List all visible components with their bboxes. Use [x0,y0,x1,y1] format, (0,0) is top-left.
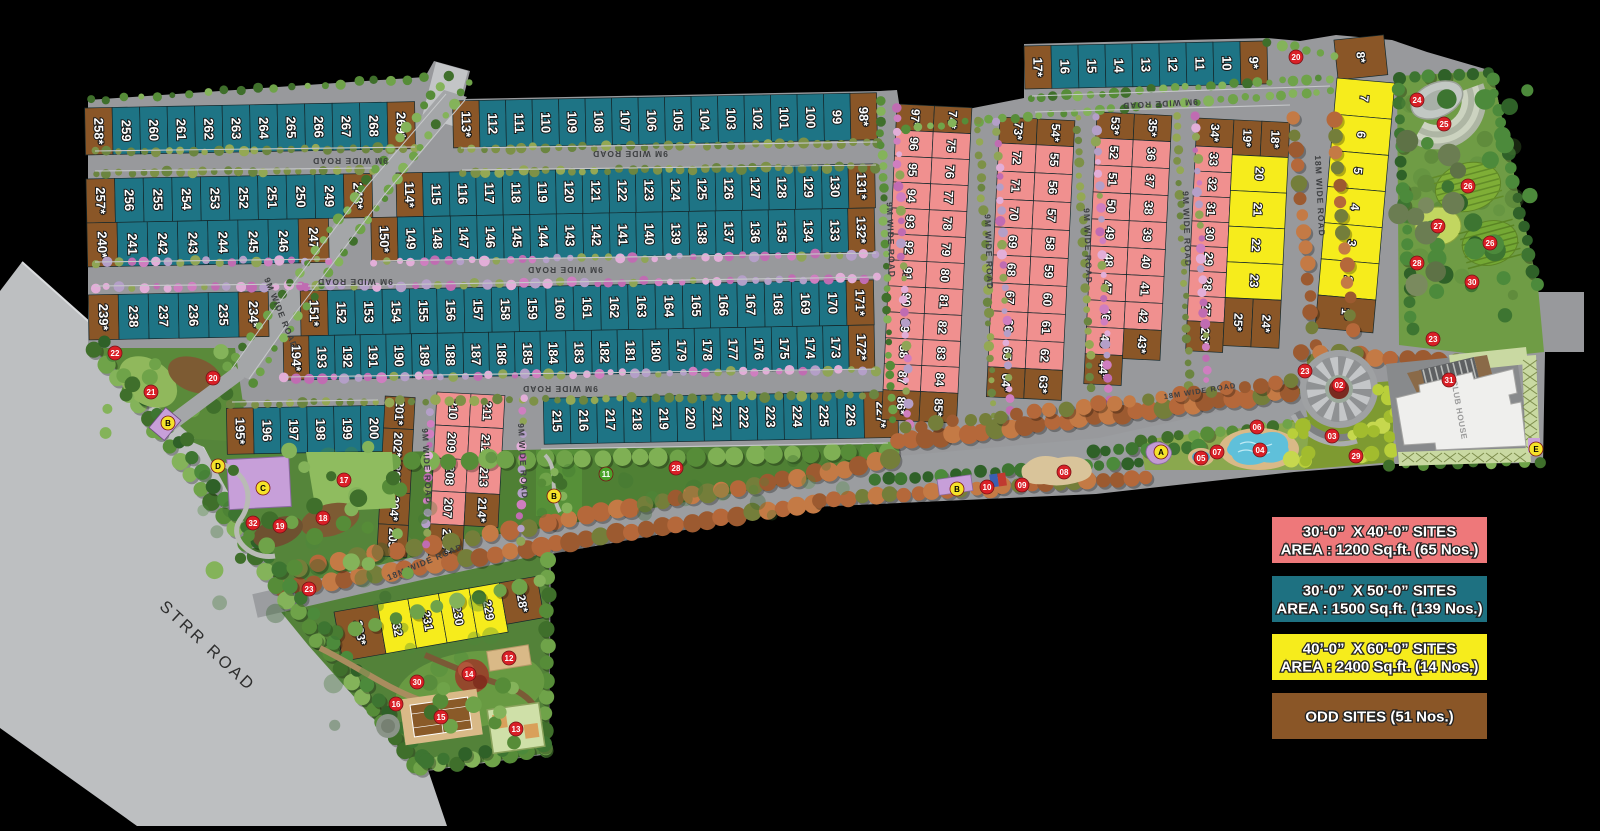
svg-text:B: B [165,419,171,428]
svg-text:150*: 150* [377,226,393,254]
svg-text:132*: 132* [854,217,870,245]
svg-text:179: 179 [674,340,689,362]
svg-text:20: 20 [1252,167,1267,181]
svg-text:13: 13 [512,725,521,734]
svg-text:216: 216 [576,409,591,431]
svg-text:12: 12 [505,654,514,663]
svg-text:200: 200 [367,417,382,439]
svg-text:61: 61 [1039,320,1054,334]
svg-text:10: 10 [1219,56,1234,71]
svg-text:214*: 214* [474,497,489,523]
svg-text:264: 264 [256,117,271,140]
svg-text:256: 256 [122,189,137,211]
svg-text:137: 137 [721,222,736,244]
svg-text:26: 26 [1486,239,1495,248]
svg-text:93: 93 [903,215,918,229]
svg-text:188: 188 [443,344,458,366]
svg-text:133: 133 [827,220,842,242]
svg-text:24: 24 [1413,96,1422,105]
svg-text:25: 25 [1440,120,1449,129]
svg-text:257*: 257* [93,187,109,215]
svg-text:123: 123 [641,179,656,201]
svg-text:72: 72 [1009,151,1024,165]
svg-text:173: 173 [828,337,843,359]
svg-text:34*: 34* [1207,124,1222,143]
svg-text:15: 15 [437,713,446,722]
svg-text:107: 107 [617,110,632,132]
svg-text:235: 235 [216,304,231,326]
svg-text:135: 135 [774,221,789,243]
svg-text:C: C [260,484,266,493]
svg-text:23: 23 [1429,335,1438,344]
svg-text:183: 183 [571,342,586,364]
svg-text:149: 149 [403,228,418,250]
svg-text:23: 23 [1247,274,1262,288]
svg-text:180: 180 [648,340,663,362]
svg-text:116: 116 [455,183,470,204]
svg-text:80: 80 [938,269,953,283]
svg-text:267: 267 [339,115,354,137]
svg-text:223: 223 [763,406,778,428]
svg-text:195*: 195* [233,418,249,446]
svg-text:154: 154 [388,301,403,324]
svg-text:152: 152 [334,302,349,324]
svg-text:56: 56 [1045,181,1060,195]
svg-text:209: 209 [444,432,459,453]
svg-text:38: 38 [1141,201,1156,215]
svg-text:43*: 43* [1134,335,1149,354]
svg-text:220: 220 [683,407,698,429]
svg-text:236: 236 [186,304,201,326]
svg-text:03: 03 [1328,432,1337,441]
svg-text:161: 161 [579,297,594,319]
svg-text:207: 207 [440,498,455,519]
svg-text:262: 262 [201,118,216,140]
svg-text:63*: 63* [1036,375,1051,394]
svg-text:196: 196 [259,420,274,442]
svg-text:AREA : 2400 Sq.ft. (14 Nos.): AREA : 2400 Sq.ft. (14 Nos.) [1281,659,1479,676]
svg-text:245: 245 [246,231,261,253]
svg-text:119: 119 [535,182,550,203]
svg-text:219: 219 [656,408,671,430]
svg-text:96: 96 [907,137,922,151]
svg-text:221: 221 [710,407,725,429]
svg-text:85*: 85* [931,398,946,417]
svg-text:19*: 19* [1240,129,1255,148]
svg-text:175: 175 [777,338,792,360]
svg-text:B: B [551,492,557,501]
svg-text:16: 16 [392,700,401,709]
svg-text:30’-0” X 50’-0” SITES: 30’-0” X 50’-0” SITES [1303,583,1456,600]
svg-text:9M WIDE ROAD: 9M WIDE ROAD [522,384,598,394]
svg-text:198: 198 [313,419,328,441]
svg-text:51: 51 [1105,172,1120,186]
svg-text:142: 142 [589,224,604,246]
svg-text:113*: 113* [458,111,474,138]
svg-text:191: 191 [366,345,381,367]
svg-text:250: 250 [293,186,308,208]
svg-text:09: 09 [1018,481,1027,490]
svg-text:246: 246 [276,230,291,252]
svg-text:172*: 172* [854,334,870,362]
svg-text:42: 42 [1136,309,1151,323]
svg-text:06: 06 [1253,423,1262,432]
svg-text:146: 146 [483,226,498,248]
svg-text:15: 15 [1084,59,1099,74]
svg-text:37: 37 [1143,174,1158,188]
svg-text:260: 260 [146,119,161,141]
svg-text:254: 254 [179,188,194,211]
svg-text:134: 134 [801,220,816,243]
svg-text:255: 255 [150,189,165,211]
svg-text:20: 20 [1292,53,1301,62]
svg-text:114*: 114* [402,182,418,209]
svg-text:9M WIDE ROAD: 9M WIDE ROAD [527,265,603,275]
svg-text:143: 143 [562,225,577,247]
svg-text:252: 252 [236,187,251,209]
svg-text:AREA : 1200 Sq.ft. (65 Nos.): AREA : 1200 Sq.ft. (65 Nos.) [1281,542,1479,559]
svg-text:39: 39 [1140,228,1155,242]
svg-text:83: 83 [934,346,949,360]
svg-text:186: 186 [494,343,509,365]
svg-text:129: 129 [801,176,816,198]
svg-text:159: 159 [525,298,540,320]
svg-text:78: 78 [940,217,955,231]
svg-text:94: 94 [904,189,919,203]
svg-text:162: 162 [607,296,622,318]
svg-text:243: 243 [185,232,200,254]
svg-text:14: 14 [1111,58,1126,74]
svg-text:158: 158 [498,298,513,320]
svg-text:8*: 8* [1353,51,1368,64]
svg-text:73*: 73* [1011,122,1026,141]
svg-text:28: 28 [672,464,681,473]
svg-text:117: 117 [482,183,497,204]
svg-text:105: 105 [670,109,685,131]
svg-text:261: 261 [174,119,189,141]
svg-text:108: 108 [591,111,606,133]
svg-text:14: 14 [465,670,474,679]
svg-text:13: 13 [1138,58,1153,73]
svg-text:28: 28 [1413,259,1422,268]
svg-text:197: 197 [286,419,301,441]
svg-text:AREA : 1500 Sq.ft. (139 Nos.): AREA : 1500 Sq.ft. (139 Nos.) [1276,601,1482,618]
svg-text:263: 263 [229,118,244,140]
svg-text:12: 12 [1165,57,1180,72]
svg-text:36: 36 [1144,147,1159,161]
svg-text:B: B [954,485,960,494]
svg-text:249: 249 [322,185,337,207]
svg-text:181: 181 [623,341,638,363]
svg-text:121: 121 [588,180,603,202]
svg-text:239*: 239* [96,304,112,332]
svg-text:169: 169 [798,293,813,315]
svg-text:20: 20 [209,374,218,383]
svg-text:131*: 131* [854,173,870,201]
svg-text:170: 170 [825,292,840,314]
svg-text:17*: 17* [1030,57,1045,78]
svg-text:258*: 258* [91,118,107,146]
svg-text:192: 192 [340,346,355,368]
svg-text:156: 156 [443,299,458,321]
svg-text:9M WIDE ROAD: 9M WIDE ROAD [317,277,393,287]
svg-text:18: 18 [319,514,328,523]
svg-text:33: 33 [1206,152,1221,166]
svg-text:11: 11 [602,470,611,479]
svg-text:217: 217 [603,409,618,431]
svg-text:29: 29 [1352,452,1361,461]
svg-text:77: 77 [941,191,956,205]
svg-text:174: 174 [803,337,818,360]
svg-text:118: 118 [508,182,523,203]
svg-text:04: 04 [1256,446,1265,455]
svg-text:241: 241 [125,233,140,255]
svg-text:A: A [1158,448,1164,457]
svg-text:244: 244 [215,231,230,254]
svg-text:157: 157 [470,299,485,321]
svg-text:32: 32 [1205,177,1220,191]
svg-text:22: 22 [111,349,120,358]
svg-text:69: 69 [1005,235,1020,249]
svg-text:168: 168 [771,293,786,315]
svg-text:237: 237 [156,305,171,327]
svg-text:138: 138 [695,222,710,244]
svg-text:259: 259 [119,120,134,142]
svg-text:41: 41 [1137,282,1152,296]
svg-text:111: 111 [512,113,527,134]
svg-text:81: 81 [936,294,951,308]
svg-text:240*: 240* [95,231,111,259]
svg-text:D: D [215,462,221,471]
svg-text:163: 163 [634,296,649,318]
svg-text:193: 193 [314,346,329,368]
svg-text:177: 177 [725,339,740,361]
svg-text:40’-0” X 60’-0” SITES: 40’-0” X 60’-0” SITES [1303,641,1456,658]
svg-text:21: 21 [1250,203,1265,217]
svg-text:178: 178 [700,339,715,361]
svg-text:251: 251 [265,186,280,208]
svg-text:165: 165 [689,295,704,317]
svg-text:23: 23 [305,585,314,594]
svg-text:155: 155 [416,300,431,322]
svg-text:30: 30 [1468,278,1477,287]
svg-text:21: 21 [147,388,156,397]
svg-text:79: 79 [939,243,954,257]
svg-text:31: 31 [1445,376,1454,385]
svg-text:136: 136 [748,221,763,243]
svg-text:82: 82 [935,320,950,334]
svg-text:224: 224 [790,405,805,428]
svg-text:ODD SITES (51 Nos.): ODD SITES (51 Nos.) [1305,709,1453,726]
svg-text:225: 225 [816,405,831,427]
svg-text:102: 102 [750,108,765,130]
svg-text:103: 103 [723,108,738,130]
svg-text:189: 189 [417,345,432,367]
svg-text:05: 05 [1197,454,1206,463]
svg-text:184: 184 [546,342,561,365]
svg-text:22: 22 [1249,238,1264,252]
svg-text:100: 100 [803,107,818,129]
svg-text:110: 110 [538,112,553,133]
svg-text:187: 187 [468,344,483,366]
svg-text:76: 76 [943,165,958,179]
svg-text:95: 95 [905,163,920,177]
svg-text:31: 31 [1204,202,1219,216]
svg-text:202*: 202* [390,432,405,458]
svg-text:30’-0” X 40’-0” SITES: 30’-0” X 40’-0” SITES [1303,524,1456,541]
svg-text:26: 26 [1464,182,1473,191]
svg-text:104: 104 [697,109,712,132]
svg-text:E: E [1533,445,1539,454]
svg-text:32: 32 [249,519,258,528]
svg-text:148: 148 [430,227,445,249]
svg-text:71: 71 [1008,179,1023,193]
svg-text:166: 166 [716,294,731,316]
svg-text:242: 242 [155,233,170,255]
svg-text:9M WIDE ROAD: 9M WIDE ROAD [592,149,668,159]
svg-text:50: 50 [1104,199,1119,213]
svg-text:9*: 9* [1246,56,1261,70]
svg-text:147: 147 [456,227,471,249]
svg-text:27: 27 [1434,222,1443,231]
svg-text:124: 124 [668,179,683,202]
svg-text:02: 02 [1335,381,1344,390]
svg-text:153: 153 [361,301,376,323]
svg-text:19: 19 [276,522,285,531]
svg-text:226: 226 [843,404,858,426]
svg-text:35*: 35* [1145,118,1160,137]
svg-text:176: 176 [751,338,766,360]
svg-text:55: 55 [1047,153,1062,167]
svg-text:109: 109 [564,111,579,133]
svg-text:17: 17 [340,476,349,485]
svg-text:58: 58 [1043,237,1058,251]
svg-text:60: 60 [1040,293,1055,307]
svg-text:253: 253 [207,188,222,210]
svg-text:128: 128 [774,177,789,199]
svg-text:268: 268 [366,115,381,137]
svg-text:52: 52 [1107,145,1122,159]
svg-text:59: 59 [1041,265,1056,279]
svg-text:122: 122 [615,180,630,202]
svg-text:222: 222 [736,406,751,428]
svg-text:120: 120 [562,181,577,203]
svg-text:265: 265 [284,117,299,139]
svg-text:164: 164 [661,295,676,318]
svg-text:25*: 25* [1231,313,1246,332]
svg-text:185: 185 [520,343,535,365]
svg-text:30: 30 [413,678,422,687]
svg-text:190: 190 [391,345,406,367]
svg-text:171*: 171* [852,289,868,317]
svg-text:182: 182 [597,341,612,363]
svg-text:167: 167 [743,294,758,316]
svg-text:160: 160 [552,297,567,319]
svg-text:75: 75 [944,139,959,153]
svg-text:40: 40 [1139,255,1154,269]
svg-text:127: 127 [748,177,763,199]
svg-text:130: 130 [827,176,842,198]
svg-text:11: 11 [1192,57,1207,71]
svg-text:62: 62 [1037,348,1052,362]
svg-text:07: 07 [1213,448,1222,457]
svg-text:139: 139 [668,223,683,245]
svg-text:57: 57 [1044,209,1059,223]
svg-text:115: 115 [429,184,444,205]
svg-text:101: 101 [776,107,791,129]
svg-text:199: 199 [340,418,355,440]
svg-text:112: 112 [485,113,500,134]
svg-text:215: 215 [549,410,564,432]
svg-text:141: 141 [615,224,630,246]
svg-text:23: 23 [1301,367,1310,376]
svg-text:08: 08 [1060,468,1069,477]
svg-text:16: 16 [1057,59,1072,74]
svg-text:53*: 53* [1108,117,1123,136]
svg-text:238: 238 [126,306,141,328]
svg-text:98*: 98* [856,107,871,128]
svg-text:10: 10 [983,483,992,492]
svg-text:125: 125 [694,178,709,200]
svg-text:54*: 54* [1048,123,1063,142]
svg-text:145: 145 [509,226,524,248]
svg-text:9M WIDE ROAD: 9M WIDE ROAD [312,156,388,166]
svg-text:266: 266 [311,116,326,138]
svg-text:106: 106 [644,110,659,132]
svg-text:24*: 24* [1259,314,1274,333]
svg-text:140: 140 [642,223,657,245]
svg-text:84: 84 [932,372,947,386]
svg-text:126: 126 [721,178,736,200]
svg-text:70: 70 [1007,207,1022,221]
svg-text:99: 99 [830,110,845,125]
svg-text:18*: 18* [1268,130,1283,149]
svg-text:218: 218 [630,408,645,430]
svg-text:144: 144 [536,225,551,248]
